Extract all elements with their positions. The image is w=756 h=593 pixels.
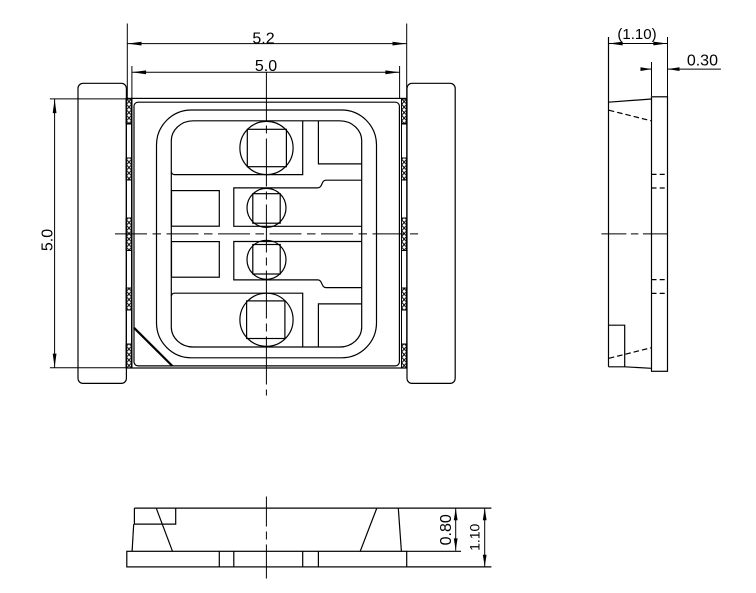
svg-text:0.80: 0.80 [438,514,455,545]
svg-text:1.10: 1.10 [467,523,483,550]
svg-text:5.2: 5.2 [252,31,274,48]
svg-text:0.30: 0.30 [687,52,718,69]
svg-text:(1.10): (1.10) [617,26,656,43]
svg-text:5.0: 5.0 [40,229,57,251]
svg-text:5.0: 5.0 [255,58,277,75]
